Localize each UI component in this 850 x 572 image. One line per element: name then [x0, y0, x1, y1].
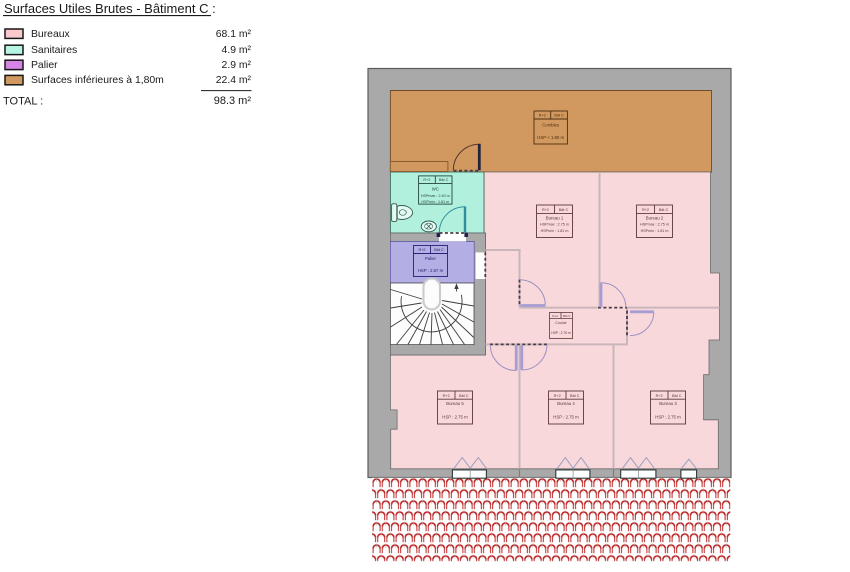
svg-text:Bureau 1: Bureau 1	[546, 215, 564, 220]
svg-text:Bât C: Bât C	[559, 208, 569, 212]
svg-text:R+2: R+2	[542, 208, 549, 212]
svg-text:2.9 m²: 2.9 m²	[222, 60, 252, 71]
svg-text:Bureaux: Bureaux	[31, 29, 71, 40]
svg-text:HSP : 2.67 m: HSP : 2.67 m	[418, 268, 444, 273]
svg-text:98.3 m²: 98.3 m²	[214, 95, 252, 107]
svg-text:HSPmax : 2.75 m: HSPmax : 2.75 m	[640, 222, 669, 226]
svg-text:TOTAL :: TOTAL :	[3, 96, 43, 108]
svg-text:R+2: R+2	[418, 248, 425, 252]
svg-text:Combles: Combles	[542, 122, 559, 127]
svg-text:22.4 m²: 22.4 m²	[216, 75, 252, 86]
svg-text:4.9 m²: 4.9 m²	[222, 45, 252, 56]
svg-text:Palier: Palier	[425, 256, 437, 261]
svg-text:Surfaces Utiles Brutes - Bâtim: Surfaces Utiles Brutes - Bâtiment C :	[4, 1, 216, 16]
svg-text:HSPmax : 2.40 m: HSPmax : 2.40 m	[421, 194, 450, 198]
svg-text:R+2: R+2	[656, 394, 663, 398]
svg-text:Palier: Palier	[31, 60, 58, 71]
svg-text:Bât C: Bât C	[563, 314, 571, 318]
svg-text:Bureau 3: Bureau 3	[659, 401, 677, 406]
svg-text:HSPmin : 1.81 m: HSPmin : 1.81 m	[641, 229, 669, 233]
svg-text:Bureau 2: Bureau 2	[646, 215, 664, 220]
svg-text:HSP : 2.75 m: HSP : 2.75 m	[655, 415, 681, 420]
svg-text:HSP : 2.75 m: HSP : 2.75 m	[442, 415, 468, 420]
svg-text:HSP : 2.76 m: HSP : 2.76 m	[551, 331, 571, 335]
svg-text:Sanitaires: Sanitaires	[31, 45, 77, 56]
svg-text:Bât C: Bât C	[672, 394, 682, 398]
svg-text:Bât C: Bât C	[459, 394, 469, 398]
svg-text:Bât C: Bât C	[434, 248, 444, 252]
svg-text:HSPmax : 2.75 m: HSPmax : 2.75 m	[540, 222, 569, 226]
svg-text:Bureau 4: Bureau 4	[557, 401, 575, 406]
svg-text:68.1 m²: 68.1 m²	[216, 29, 252, 40]
svg-text:Bât C: Bât C	[659, 208, 669, 212]
svg-text:Bureau 5: Bureau 5	[446, 401, 464, 406]
svg-text:HSPmin : 1.81 m: HSPmin : 1.81 m	[421, 200, 449, 204]
svg-text:R+2: R+2	[539, 114, 546, 118]
svg-text:Bât C: Bât C	[554, 114, 564, 118]
svg-text:R+2: R+2	[443, 394, 450, 398]
svg-text:WC: WC	[432, 187, 439, 192]
svg-text:R+2: R+2	[423, 178, 430, 182]
svg-text:Bât C: Bât C	[439, 178, 449, 182]
svg-text:R+2: R+2	[642, 208, 649, 212]
svg-text:R+2: R+2	[552, 314, 558, 318]
svg-text:Surfaces inférieures à 1,80m: Surfaces inférieures à 1,80m	[31, 75, 164, 86]
svg-text:HSP : 2.75 m: HSP : 2.75 m	[553, 415, 579, 420]
svg-text:HSP < 1.80 m: HSP < 1.80 m	[537, 135, 564, 140]
svg-text:R+2: R+2	[554, 394, 561, 398]
svg-text:Bât C: Bât C	[570, 394, 580, 398]
svg-text:HSPmin : 1.81 m: HSPmin : 1.81 m	[541, 229, 569, 233]
svg-text:Couloir: Couloir	[555, 321, 567, 325]
